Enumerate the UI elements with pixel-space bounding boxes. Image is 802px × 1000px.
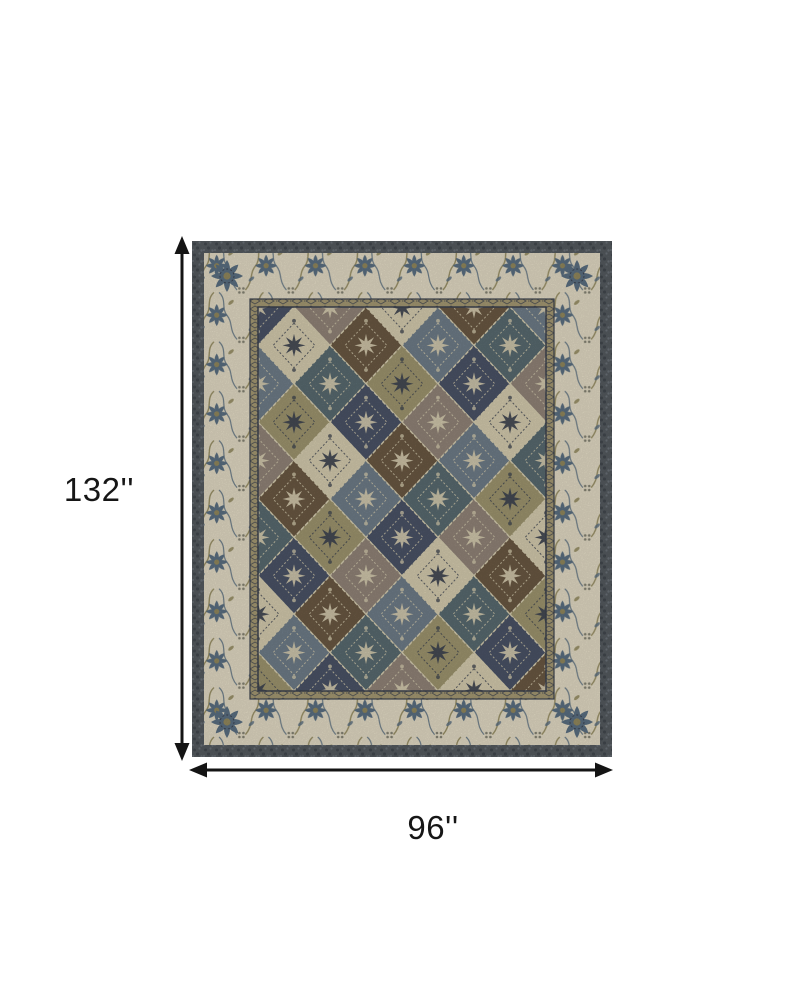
- rug-texture-overlay: [192, 241, 612, 757]
- rug-image: [192, 241, 612, 757]
- width-dimension-arrow: [189, 763, 613, 778]
- product-dimension-diagram: 132'' 96'': [0, 0, 802, 1000]
- height-dimension-label: 132'': [51, 473, 147, 506]
- width-dimension-label: 96'': [385, 811, 481, 844]
- height-dimension-arrow: [175, 236, 190, 761]
